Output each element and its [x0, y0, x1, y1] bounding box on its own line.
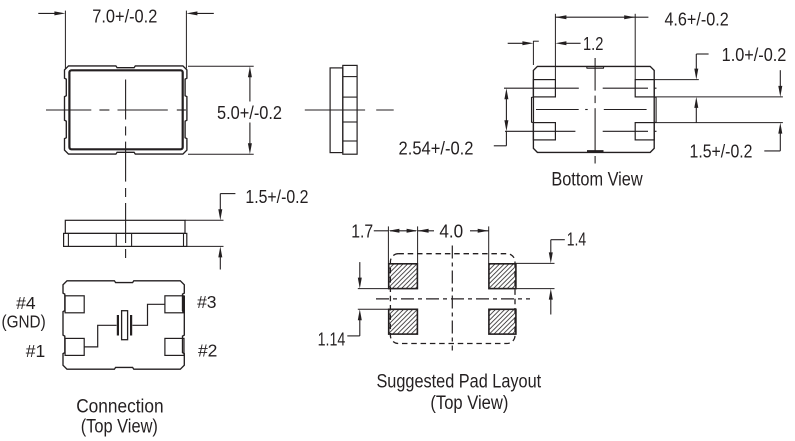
svg-text:Bottom View: Bottom View [551, 170, 643, 191]
svg-text:4.0: 4.0 [439, 221, 463, 241]
svg-text:(Top View): (Top View) [81, 417, 158, 438]
svg-text:1.5+/-0.2: 1.5+/-0.2 [690, 141, 753, 161]
svg-text:Suggested Pad Layout: Suggested Pad Layout [376, 372, 541, 393]
svg-text:1.2: 1.2 [583, 34, 603, 54]
svg-text:1.5+/-0.2: 1.5+/-0.2 [245, 187, 308, 207]
svg-text:#1: #1 [26, 341, 45, 361]
svg-text:5.0+/-0.2: 5.0+/-0.2 [217, 103, 282, 123]
svg-text:2.54+/-0.2: 2.54+/-0.2 [399, 139, 474, 159]
svg-text:1.14: 1.14 [318, 329, 346, 349]
svg-text:(Top View): (Top View) [430, 393, 508, 414]
svg-text:1.0+/-0.2: 1.0+/-0.2 [722, 45, 787, 65]
svg-text:4.6+/-0.2: 4.6+/-0.2 [664, 10, 728, 30]
svg-text:Connection: Connection [76, 397, 163, 418]
svg-text:#2: #2 [198, 341, 217, 361]
svg-text:1.4: 1.4 [567, 229, 586, 249]
svg-text:7.0+/-0.2: 7.0+/-0.2 [92, 6, 157, 26]
svg-text:1.7: 1.7 [351, 221, 373, 241]
svg-text:(GND): (GND) [2, 312, 46, 332]
svg-text:#3: #3 [197, 292, 216, 312]
svg-text:#4: #4 [16, 293, 36, 313]
